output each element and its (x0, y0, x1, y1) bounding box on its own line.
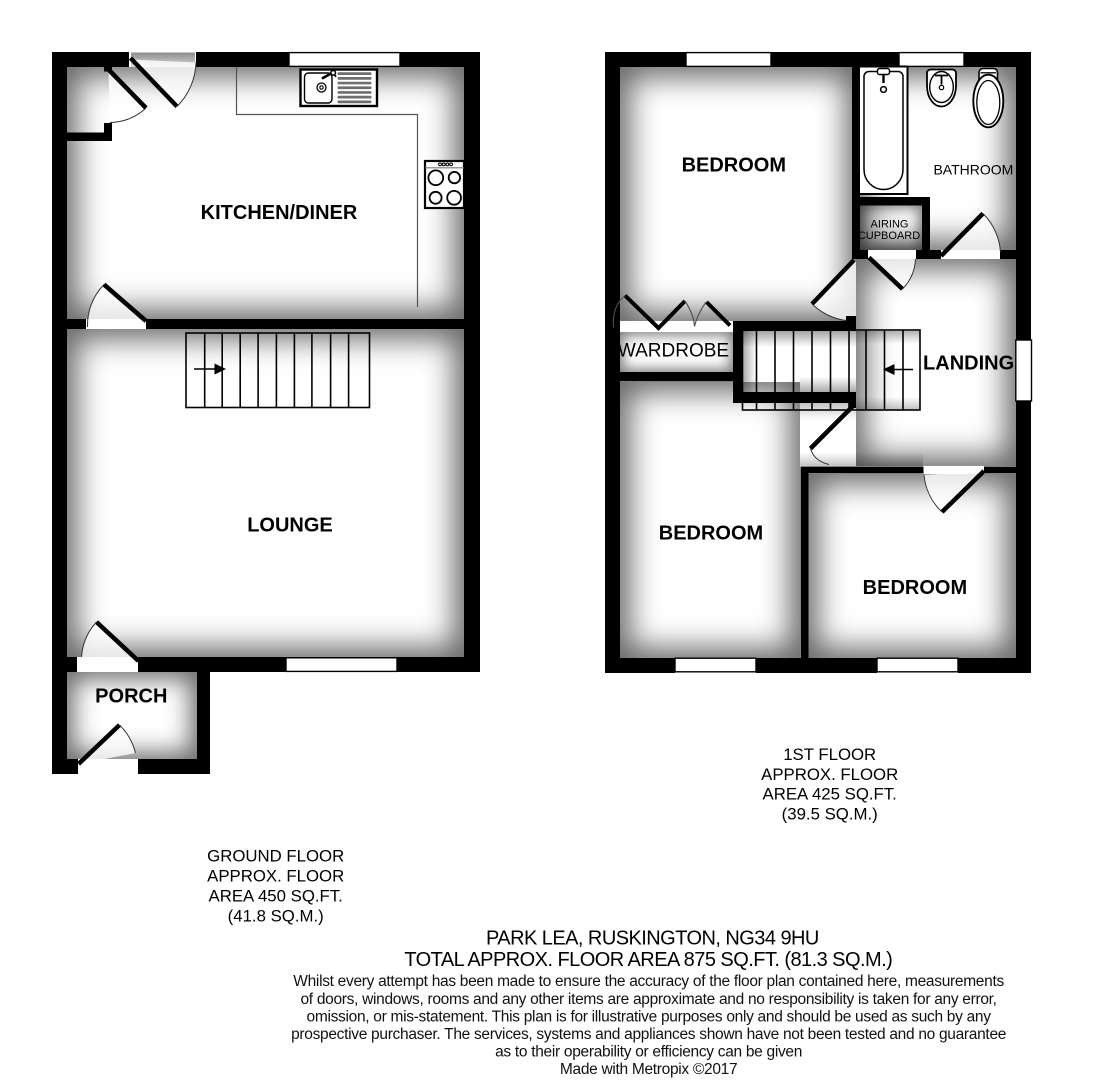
svg-text:AIRING: AIRING (871, 218, 909, 230)
svg-text:APPROX. FLOOR: APPROX. FLOOR (761, 765, 898, 784)
svg-text:AREA 450 SQ.FT.: AREA 450 SQ.FT. (209, 887, 343, 906)
svg-text:BATHROOM: BATHROOM (933, 162, 1013, 178)
svg-text:KITCHEN/DINER: KITCHEN/DINER (201, 202, 358, 224)
svg-text:of doors, windows, rooms and a: of doors, windows, rooms and any other i… (300, 991, 996, 1008)
svg-text:BEDROOM: BEDROOM (863, 577, 967, 599)
svg-text:TOTAL APPROX. FLOOR AREA 875 S: TOTAL APPROX. FLOOR AREA 875 SQ.FT. (81.… (404, 949, 892, 971)
svg-text:1ST FLOOR: 1ST FLOOR (783, 745, 876, 764)
svg-text:as to their operability or eff: as to their operability or efficiency ca… (495, 1044, 802, 1061)
svg-text:Whilst every attempt has been: Whilst every attempt has been made to en… (293, 973, 1004, 990)
svg-text:(41.8 SQ.M.): (41.8 SQ.M.) (228, 907, 324, 926)
svg-text:(39.5 SQ.M.): (39.5 SQ.M.) (782, 805, 878, 824)
svg-text:PARK LEA, RUSKINGTON, NG34 9HU: PARK LEA, RUSKINGTON, NG34 9HU (486, 927, 819, 949)
svg-text:Made with Metropix ©2017: Made with Metropix ©2017 (560, 1061, 737, 1078)
svg-text:LOUNGE: LOUNGE (247, 514, 333, 536)
svg-text:omission, or mis-statement. Th: omission, or mis-statement. This plan is… (307, 1008, 992, 1025)
svg-text:GROUND FLOOR: GROUND FLOOR (207, 846, 344, 865)
svg-text:AREA 425 SQ.FT.: AREA 425 SQ.FT. (763, 785, 897, 804)
svg-text:LANDING: LANDING (923, 353, 1014, 375)
svg-text:prospective purchaser. The ser: prospective purchaser. The services, sys… (291, 1026, 1006, 1043)
svg-text:WARDROBE: WARDROBE (618, 340, 729, 361)
svg-text:PORCH: PORCH (95, 686, 167, 708)
svg-text:APPROX. FLOOR: APPROX. FLOOR (207, 867, 344, 886)
svg-text:CUPBOARD: CUPBOARD (858, 230, 920, 242)
svg-text:BEDROOM: BEDROOM (659, 523, 763, 545)
svg-text:BEDROOM: BEDROOM (682, 155, 786, 177)
